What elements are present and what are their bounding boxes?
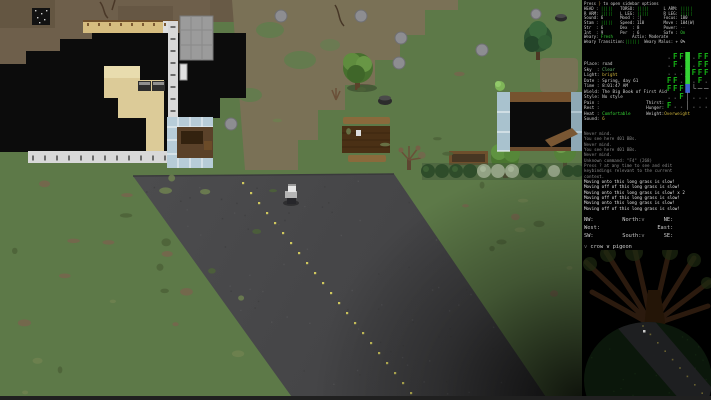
stats-block: Press } to open sidebar optionsHEAD : ||…	[584, 2, 695, 45]
minimap-row: .F.█.FF	[666, 60, 709, 68]
window-bottom-edge	[0, 396, 711, 400]
message-log: Never mind.You see here 401 BBs.Never mi…	[584, 131, 685, 211]
sidebar-line: Weary Transition:|||||| Weary Malus: + 0…	[584, 40, 695, 45]
minimap-row: .FF█.FF	[666, 52, 709, 60]
small-item-dot	[643, 330, 646, 333]
appliance	[180, 64, 187, 80]
mug-item	[356, 130, 361, 136]
dark-area-view	[582, 250, 711, 400]
sidebar-line: NW: North:v NE:	[584, 216, 673, 224]
chair	[204, 141, 212, 150]
sidebar-line: West: East:	[584, 224, 673, 232]
sidebar-line: SW: South:v SE:	[584, 232, 673, 240]
table	[181, 131, 203, 144]
sidebar-panel: Press } to open sidebar optionsHEAD : ||…	[582, 0, 711, 400]
game-screen: Press } to open sidebar optionsHEAD : ||…	[0, 0, 711, 400]
compass-block: NW: North:v NE:West: East:SW: South:v SE…	[584, 216, 673, 240]
sidebar-line: Sound: 6	[584, 117, 690, 123]
porch-greenhouse	[167, 117, 213, 168]
overmap-minimap: .FF█.FF.F.█.FF...█FFFFF.█.F.FFF█└──..F│.…	[666, 52, 709, 109]
minimap-row: ..F│...	[666, 92, 709, 100]
sidebar-line: Moving off of this long grass is slow!	[584, 206, 685, 211]
game-world-view[interactable]	[0, 0, 582, 400]
south-wall	[28, 151, 178, 163]
sapling	[495, 81, 505, 91]
vignette	[300, 150, 582, 400]
rubble-tile	[32, 8, 50, 25]
minimap-row: F..│...	[666, 101, 709, 109]
shed	[497, 92, 582, 151]
